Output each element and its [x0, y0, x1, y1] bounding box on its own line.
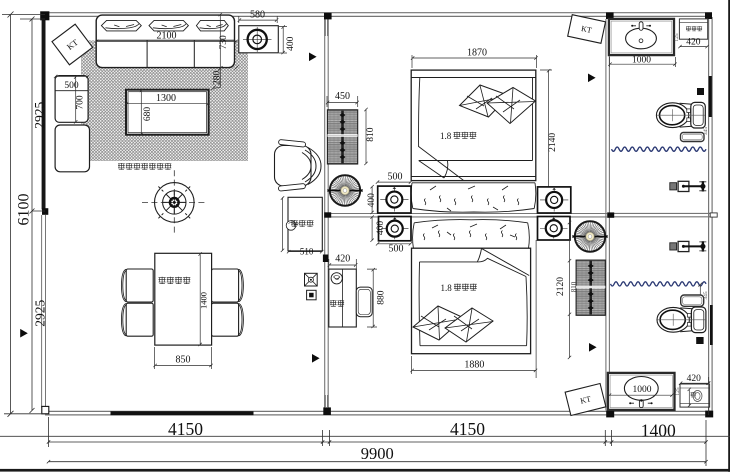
- svg-text:450: 450: [335, 91, 350, 102]
- svg-text:400: 400: [286, 36, 296, 51]
- svg-text:2140: 2140: [548, 133, 558, 152]
- svg-text:500: 500: [64, 81, 79, 91]
- svg-text:4150: 4150: [450, 419, 485, 439]
- svg-text:420: 420: [687, 374, 702, 384]
- svg-text:850: 850: [176, 355, 191, 366]
- svg-text:345: 345: [703, 291, 709, 300]
- svg-text:9900: 9900: [361, 444, 394, 463]
- svg-text:880: 880: [376, 290, 386, 305]
- svg-text:700: 700: [76, 95, 86, 110]
- svg-text:510: 510: [300, 247, 314, 257]
- svg-text:500: 500: [389, 243, 404, 254]
- svg-text:1870: 1870: [467, 47, 487, 58]
- svg-text:1000: 1000: [633, 385, 652, 395]
- svg-text:810: 810: [366, 127, 376, 142]
- svg-text:4150: 4150: [168, 419, 203, 439]
- svg-text:730: 730: [219, 35, 229, 50]
- svg-text:280: 280: [212, 70, 222, 85]
- svg-text:420: 420: [335, 254, 350, 265]
- svg-text:2100: 2100: [157, 31, 177, 42]
- svg-text:125: 125: [675, 387, 681, 396]
- svg-text:2925: 2925: [32, 299, 47, 326]
- svg-text:6100: 6100: [15, 194, 32, 226]
- svg-text:125: 125: [674, 33, 680, 42]
- svg-text:2925: 2925: [32, 102, 47, 129]
- svg-text:680: 680: [143, 107, 153, 122]
- svg-text:1880: 1880: [464, 359, 484, 370]
- svg-text:1.8: 1.8: [441, 283, 453, 293]
- svg-text:400: 400: [367, 193, 377, 208]
- svg-text:1000: 1000: [632, 55, 651, 65]
- svg-text:2120: 2120: [556, 277, 566, 296]
- svg-text:420: 420: [686, 37, 701, 47]
- svg-text:1.8: 1.8: [440, 131, 452, 141]
- svg-text:1400: 1400: [198, 292, 208, 309]
- svg-text:345: 345: [703, 127, 709, 136]
- svg-text:400: 400: [376, 221, 386, 236]
- svg-text:1400: 1400: [641, 421, 676, 441]
- svg-text:500: 500: [388, 171, 403, 182]
- svg-text:1300: 1300: [156, 93, 176, 104]
- svg-text:580: 580: [250, 9, 265, 20]
